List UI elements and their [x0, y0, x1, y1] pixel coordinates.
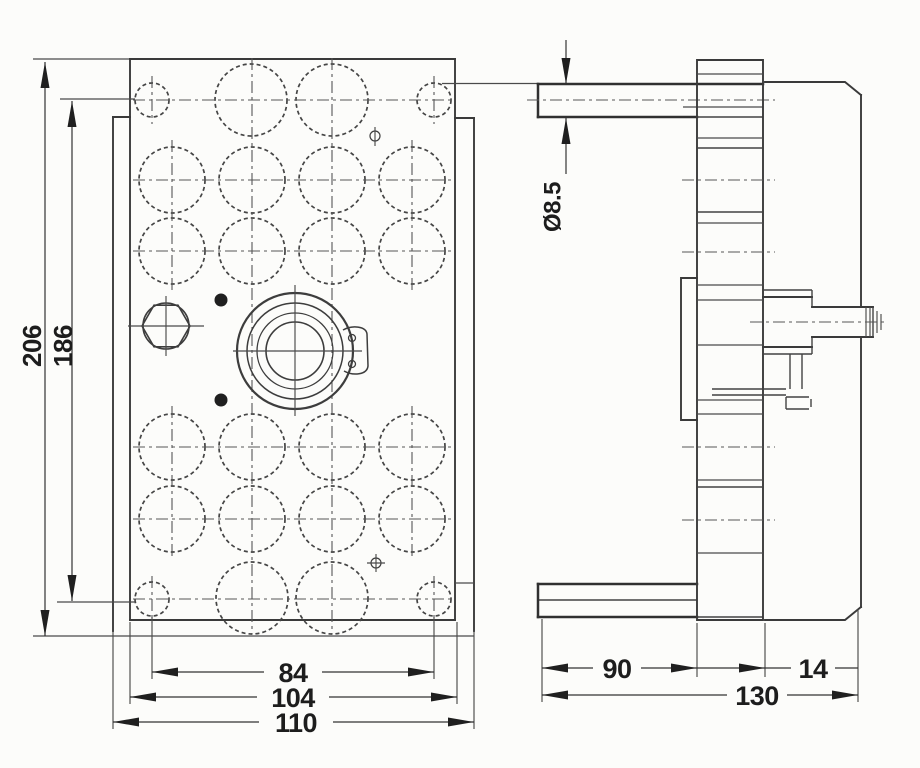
technical-drawing-canvas: 206 186 Ø8.5 84 104 110 90 14 130	[0, 0, 920, 768]
centerlines	[133, 58, 455, 634]
hex-plug	[128, 296, 204, 356]
top-port-tube	[442, 84, 775, 118]
side-view	[442, 60, 888, 620]
dim-overall-depth: 130	[735, 681, 779, 711]
mounting-flange	[681, 60, 775, 620]
dim-overall-height: 206	[17, 325, 47, 367]
drive-shaft	[750, 290, 888, 354]
dim-rear-depth: 14	[798, 654, 828, 684]
port-holes	[135, 64, 451, 634]
shaft-boss	[233, 285, 368, 416]
technical-drawing: 206 186 Ø8.5 84 104 110 90 14 130	[0, 0, 920, 768]
dim-hole-spacing-vertical: 186	[48, 325, 78, 367]
shaft-key-detail	[712, 354, 811, 409]
dim-hole-diameter: Ø8.5	[540, 182, 567, 232]
front-view	[33, 58, 474, 636]
dim-overall-width: 110	[275, 708, 317, 738]
dimension-arrows	[41, 58, 859, 727]
small-pin-marks	[215, 127, 386, 572]
pump-body	[765, 82, 861, 620]
front-plate-outline	[33, 59, 474, 636]
dim-port-depth: 90	[602, 654, 631, 684]
bottom-port-tube	[538, 584, 763, 617]
